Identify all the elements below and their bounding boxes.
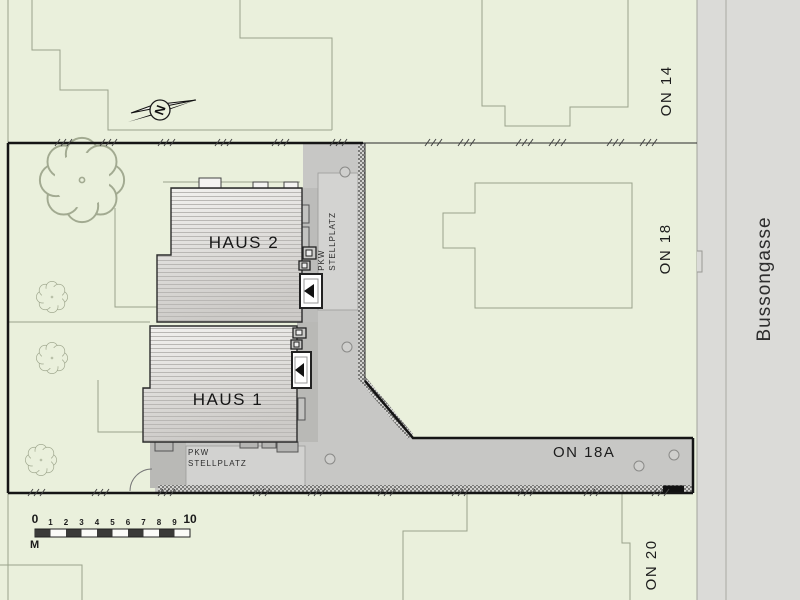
utility-box-inner	[302, 263, 307, 268]
side-tab	[302, 227, 309, 248]
tree-icon	[36, 342, 67, 373]
parcel-label-on18a: ON 18A	[553, 445, 615, 461]
gate-swing-arc	[130, 469, 152, 491]
parcel-label-on20: ON 20	[644, 535, 660, 595]
parking-label-east: PKW STELLPLATZ	[317, 207, 339, 271]
parking-label-line1: PKW	[188, 448, 247, 459]
bottom-tab	[277, 442, 298, 452]
side-tab	[298, 398, 305, 420]
scale-tick-10: 10	[180, 512, 200, 526]
parcel-label-on18: ON 18	[658, 219, 674, 279]
street-notch	[697, 251, 702, 272]
building-label-haus2: HAUS 2	[194, 234, 294, 252]
tree-icon	[25, 444, 56, 475]
street-surface	[697, 0, 800, 600]
street-name-label: Bussongasse	[755, 209, 775, 349]
utility-box-inner	[294, 342, 299, 347]
side-tab	[302, 205, 309, 223]
bottom-tab	[155, 442, 173, 451]
parcel-label-on14: ON 14	[659, 61, 675, 121]
parking-label-south: PKW STELLPLATZ	[188, 448, 247, 470]
utility-box-inner	[306, 250, 312, 256]
scale-unit: M	[30, 539, 39, 551]
site-plan-stage: N HAUS 2 HAUS 1 ON 14 ON 18 ON 20 ON 18A…	[0, 0, 800, 600]
parking-label-line2: STELLPLATZ	[188, 459, 247, 470]
tree-icon	[40, 138, 124, 222]
site-plan-drawing: N	[0, 0, 800, 600]
building-haus1-shape	[143, 326, 305, 452]
building-label-haus1: HAUS 1	[178, 391, 278, 409]
north-arrow-icon: N	[128, 100, 196, 122]
parking-label-line1: PKW	[317, 207, 328, 271]
wall-marker	[663, 486, 684, 493]
trees	[25, 138, 124, 476]
scale-bar-graphic	[35, 529, 190, 537]
parking-label-line2: STELLPLATZ	[328, 207, 339, 271]
tree-icon	[36, 281, 67, 312]
utility-box-inner	[296, 330, 302, 335]
bottom-tab	[262, 442, 276, 448]
